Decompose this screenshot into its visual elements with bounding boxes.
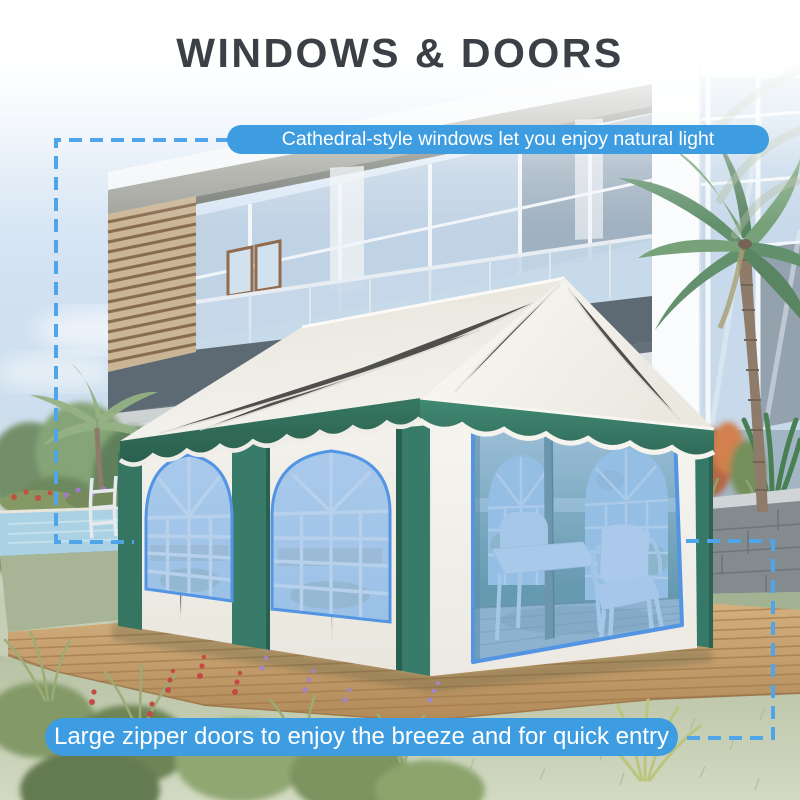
callout-windows: Cathedral-style windows let you enjoy na… [227,125,769,154]
window-highlight-left [146,455,232,601]
door-highlight [473,429,682,662]
cathedral-window-left [146,455,232,601]
window-highlight-right [272,451,390,622]
cathedral-window-right [272,451,390,622]
product-infographic: WINDOWS & DOORS Cathedral-style windows … [0,0,800,800]
page-title: WINDOWS & DOORS [0,30,800,77]
callout-windows-text: Cathedral-style windows let you enjoy na… [282,128,714,151]
callout-doors: Large zipper doors to enjoy the breeze a… [45,718,678,756]
callout-doors-text: Large zipper doors to enjoy the breeze a… [54,723,669,751]
